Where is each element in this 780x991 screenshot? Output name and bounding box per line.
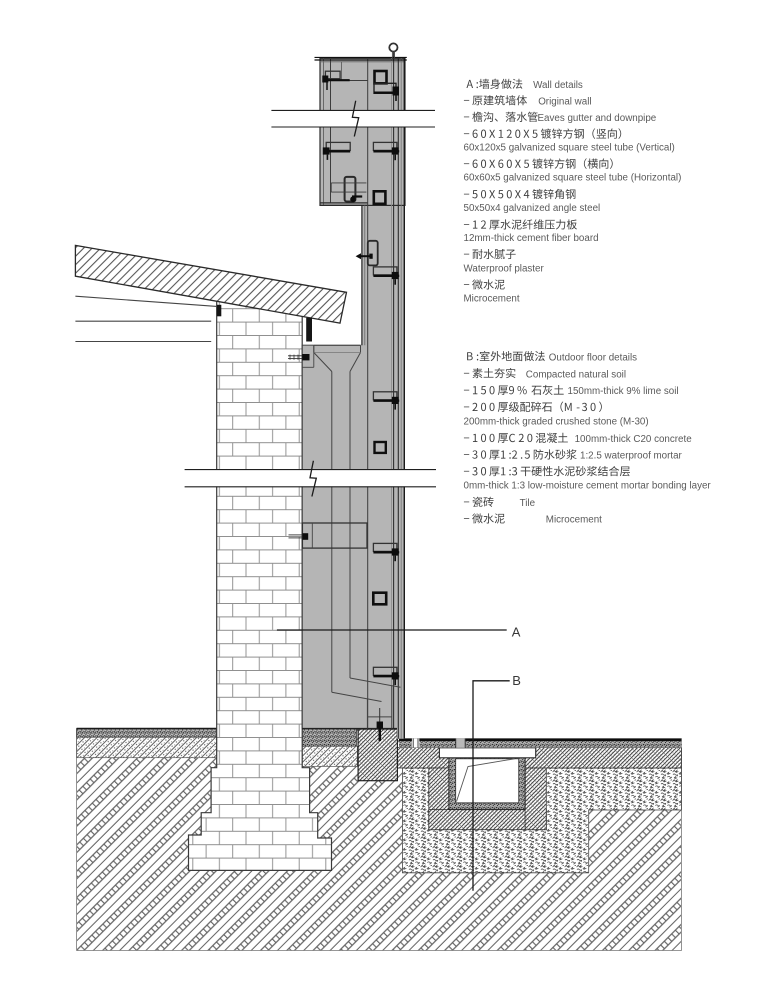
svg-text:Compacted natural soil: Compacted natural soil bbox=[526, 369, 626, 380]
svg-text:B: B bbox=[512, 673, 521, 688]
svg-text:Eaves gutter and downpipe: Eaves gutter and downpipe bbox=[538, 113, 657, 124]
svg-text:Tile: Tile bbox=[520, 498, 536, 509]
svg-text:200mm-thick graded crushed sto: 200mm-thick graded crushed stone (M-30) bbox=[464, 416, 649, 427]
svg-text:Microcement: Microcement bbox=[546, 515, 602, 526]
svg-text:12mm-thick cement fiber board: 12mm-thick cement fiber board bbox=[464, 233, 599, 244]
svg-text:Outdoor floor details: Outdoor floor details bbox=[549, 352, 637, 363]
svg-text:Microcement: Microcement bbox=[464, 294, 520, 305]
svg-text:0mm-thick 1:3 low-moisture cem: 0mm-thick 1:3 low-moisture cement mortar… bbox=[464, 480, 712, 491]
svg-text:Wall details: Wall details bbox=[533, 80, 583, 91]
svg-text:60x60x5 galvanized square stee: 60x60x5 galvanized square steel tube (Ho… bbox=[464, 173, 682, 184]
svg-text:Original wall: Original wall bbox=[538, 96, 591, 107]
svg-text:60x120x5 galvanized square ste: 60x120x5 galvanized square steel tube (V… bbox=[464, 143, 675, 154]
svg-text:100mm-thick C20 concrete: 100mm-thick C20 concrete bbox=[575, 434, 693, 445]
svg-text:A: A bbox=[512, 624, 521, 639]
svg-text:150mm-thick 9% lime soil: 150mm-thick 9% lime soil bbox=[568, 386, 679, 397]
svg-text:1:2.5 waterproof mortar: 1:2.5 waterproof mortar bbox=[580, 451, 683, 462]
svg-text:50x50x4 galvanized angle steel: 50x50x4 galvanized angle steel bbox=[464, 203, 601, 214]
svg-text:Waterproof plaster: Waterproof plaster bbox=[464, 263, 545, 274]
